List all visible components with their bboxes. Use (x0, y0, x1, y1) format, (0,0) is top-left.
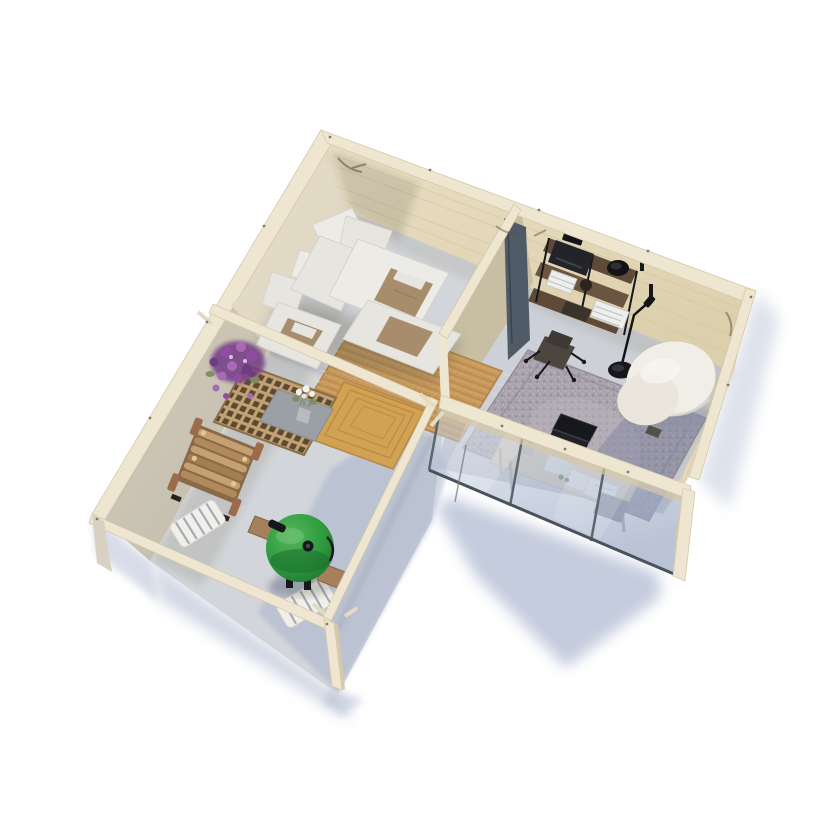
leaves (309, 399, 317, 405)
small-pot (580, 279, 592, 291)
floorplan-3d-render: Top-down 3D render of an L-shaped garden… (0, 0, 828, 828)
flower (301, 393, 306, 398)
grill-vent-cap (306, 544, 310, 548)
bowl-inner (611, 263, 622, 270)
flower (296, 389, 302, 395)
flower (302, 385, 309, 392)
grill-rim (270, 549, 330, 573)
wall-hook (649, 284, 653, 297)
leaves (292, 396, 300, 402)
lamp-base-highlight (612, 365, 624, 372)
flower (309, 391, 315, 397)
render-canvas: Top-down 3D render of an L-shaped garden… (0, 0, 828, 828)
post-shadow (322, 688, 364, 716)
